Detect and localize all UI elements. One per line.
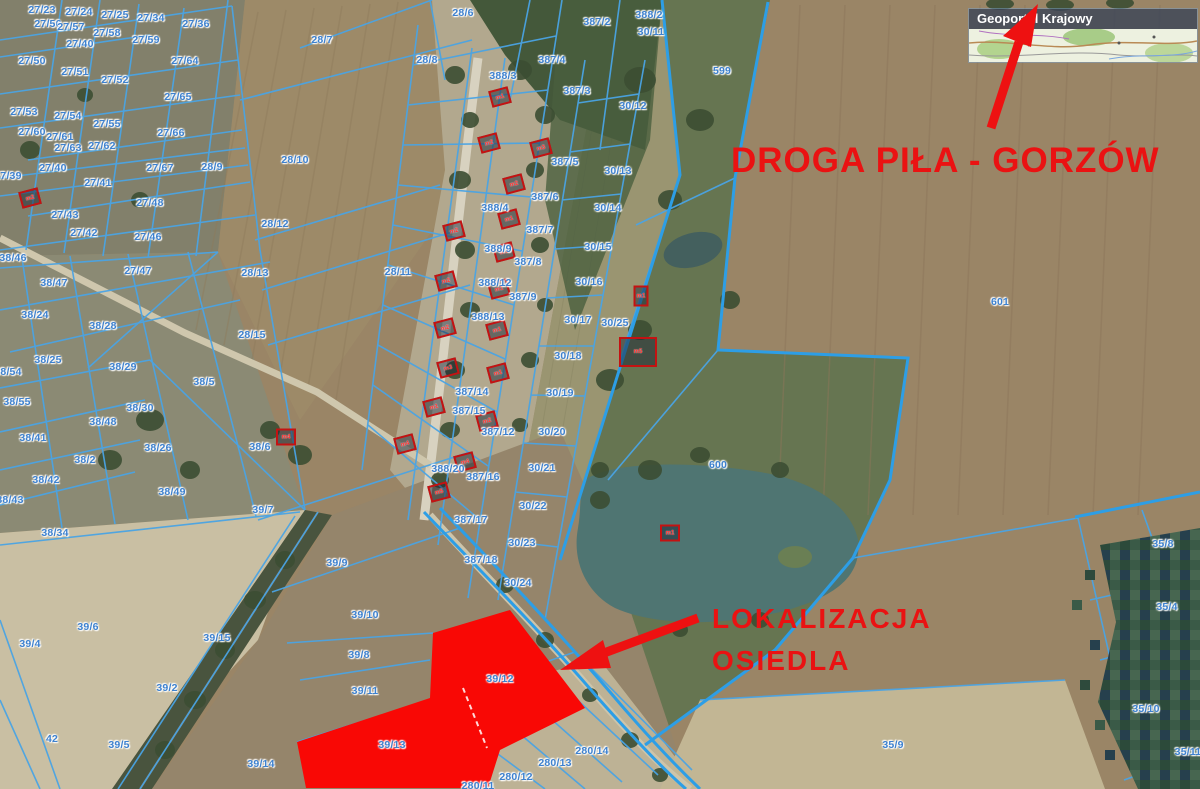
building-label: m2 (449, 227, 459, 235)
building-label: m2 (509, 180, 519, 188)
building-footprint: m1 (660, 525, 680, 542)
building-label: m2 (484, 139, 494, 147)
building-label: m1 (499, 248, 509, 256)
building-label: m1 (429, 403, 439, 411)
building-footprint: m4 (276, 429, 296, 446)
building-label: m3 (443, 364, 453, 372)
building-label: m3 (536, 144, 546, 152)
building-label: m2 (440, 324, 450, 332)
lake-island (778, 546, 812, 568)
building-label: m1 (504, 215, 514, 223)
building-label: m4 (460, 458, 470, 466)
building-label: m2 (441, 277, 451, 285)
building-label: m5 (434, 488, 444, 496)
building-label: m1 (493, 369, 503, 377)
building-label: m1 (492, 326, 502, 334)
geoportal-watermark: Geoportal Krajowy (969, 9, 1197, 62)
building-label: m1 (666, 530, 675, 536)
building-label: m4 (282, 434, 291, 440)
building-label: m1 (637, 293, 646, 299)
geoportal-logo-text: Geoportal Krajowy (969, 9, 1197, 29)
building-label: m2 (482, 417, 492, 425)
building-label: m5 (634, 349, 643, 355)
building-label: m4 (400, 440, 410, 448)
building-footprint: m5 (619, 337, 657, 367)
map-viewport[interactable]: Geoportal Krajowy m2 m1 m2 (0, 0, 1200, 789)
building-label: m1 (495, 93, 505, 101)
building-label: m2 (25, 194, 35, 202)
aerial-map-canvas (0, 0, 1200, 789)
building-label: m1 (494, 285, 504, 293)
building-footprint: m1 (634, 286, 649, 307)
geoportal-minimap (969, 29, 1197, 62)
